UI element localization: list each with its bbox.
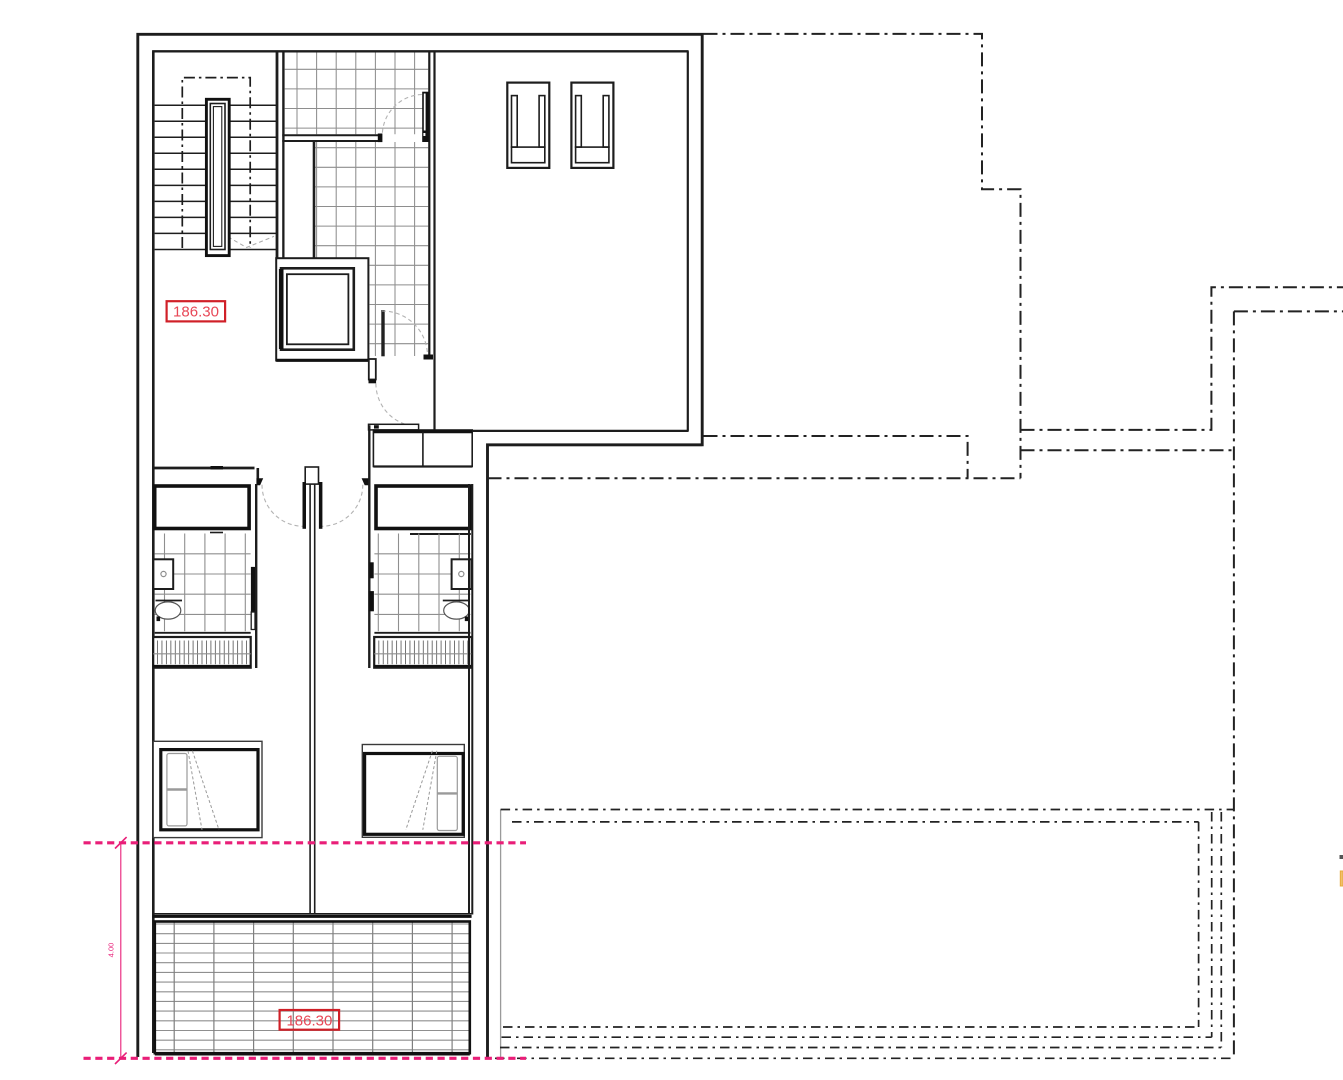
svg-text:186.30: 186.30 <box>286 1012 332 1029</box>
svg-text:4.00: 4.00 <box>107 943 116 958</box>
svg-text:186.30: 186.30 <box>173 304 219 321</box>
